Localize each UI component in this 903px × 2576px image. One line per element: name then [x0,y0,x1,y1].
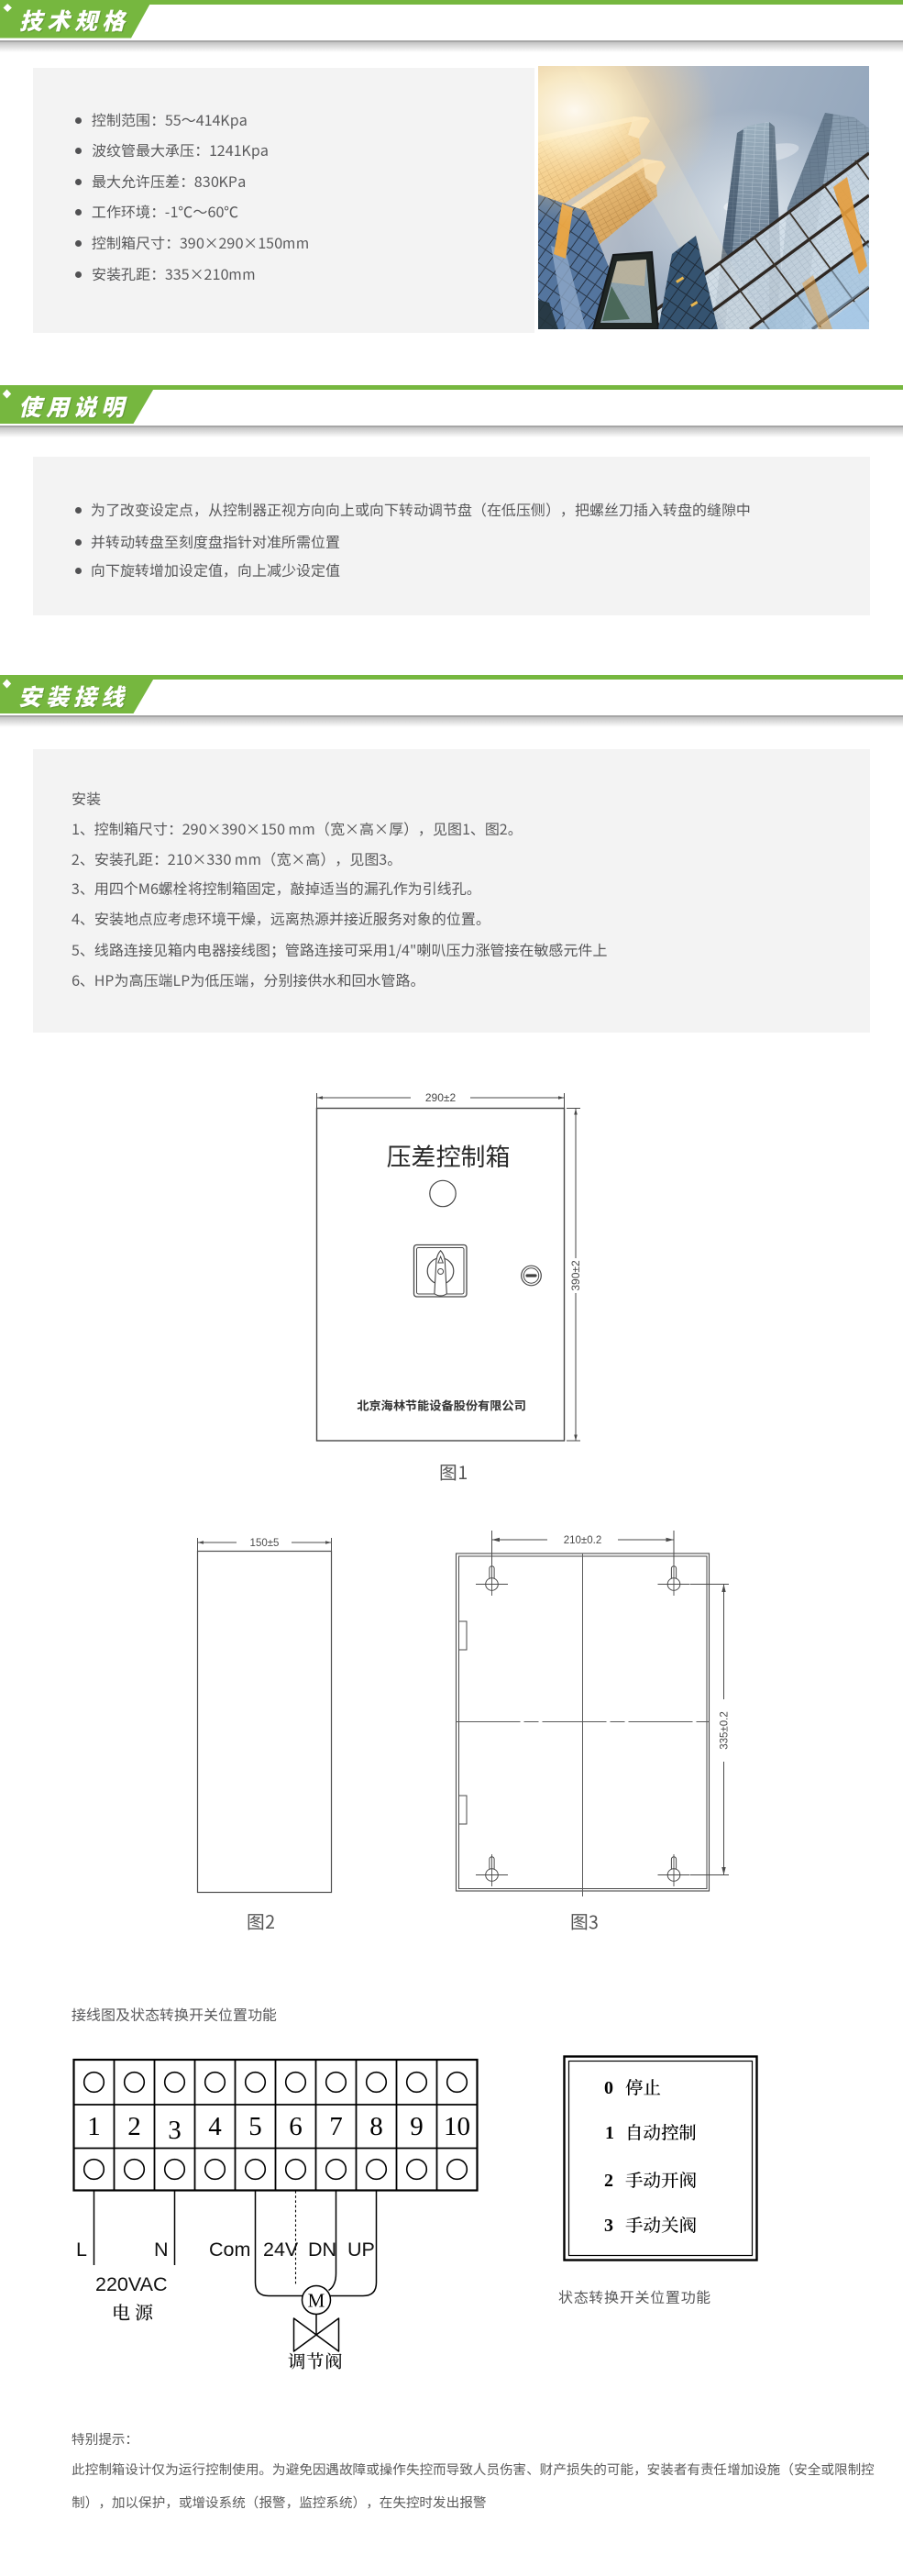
svg-text:3: 3 [604,2216,613,2236]
svg-text:390±2: 390±2 [569,1260,582,1291]
svg-text:6: 6 [289,2112,303,2141]
svg-text:150±5: 150±5 [250,1538,280,1549]
svg-text:UP: UP [347,2239,375,2261]
svg-text:290±2: 290±2 [425,1091,457,1104]
svg-text:N: N [154,2239,169,2261]
svg-text:7: 7 [329,2112,343,2141]
svg-text:10: 10 [444,2112,470,2141]
svg-text:2: 2 [127,2112,141,2141]
svg-text:3: 3 [168,2116,182,2145]
svg-text:1: 1 [87,2112,101,2141]
svg-text:自动控制: 自动控制 [625,2119,697,2145]
svg-text:9: 9 [410,2112,424,2141]
svg-text:4: 4 [208,2112,222,2141]
svg-text:手动关阀: 手动关阀 [625,2212,697,2238]
svg-text:M: M [308,2290,325,2312]
svg-text:DN: DN [308,2239,336,2261]
svg-text:8: 8 [369,2112,383,2141]
svg-text:手动开阀: 手动开阀 [625,2167,697,2193]
svg-text:电源: 电源 [112,2298,158,2325]
svg-text:压差控制箱: 压差控制箱 [387,1137,511,1173]
svg-text:停止: 停止 [625,2074,661,2100]
svg-text:220VAC: 220VAC [95,2273,167,2295]
svg-text:Com: Com [209,2239,250,2261]
svg-text:北京海林节能设备股份有限公司: 北京海林节能设备股份有限公司 [357,1397,526,1414]
svg-text:0: 0 [604,2078,613,2098]
svg-text:2: 2 [604,2171,613,2191]
svg-text:335±0.2: 335±0.2 [720,1711,731,1750]
svg-text:24V: 24V [263,2239,299,2261]
svg-text:210±0.2: 210±0.2 [564,1535,602,1546]
svg-text:1: 1 [605,2123,614,2143]
svg-text:L: L [76,2239,87,2261]
svg-text:调节阀: 调节阀 [288,2348,343,2373]
svg-text:5: 5 [248,2112,262,2141]
